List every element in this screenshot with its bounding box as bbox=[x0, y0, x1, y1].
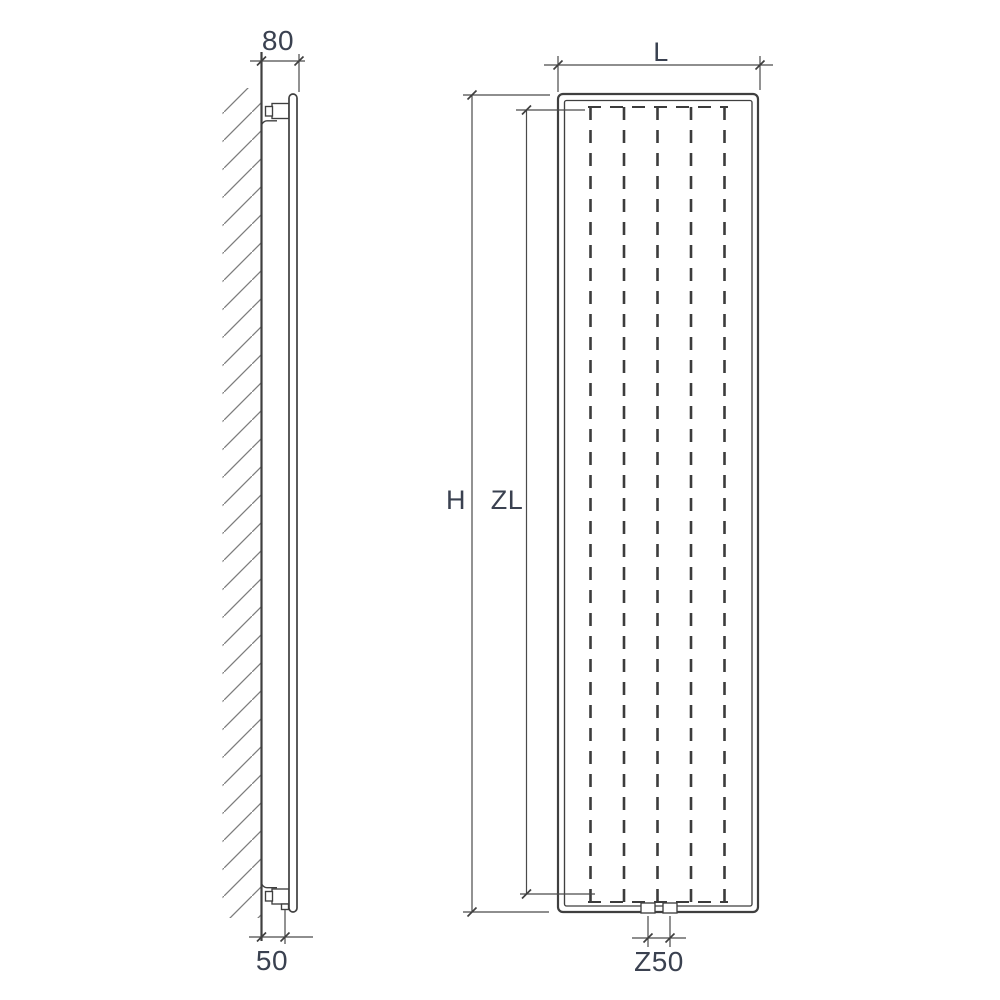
mounting-bracket-bottom bbox=[262, 885, 289, 910]
dimension-label-H: H bbox=[446, 485, 466, 515]
radiator-technical-drawing: 80 50 bbox=[0, 0, 1000, 1000]
wall-hatching bbox=[223, 88, 262, 918]
dimension-label-ZL: ZL bbox=[491, 485, 524, 515]
dimension-connection-spacing: Z50 bbox=[632, 916, 686, 977]
bracket-top-hook bbox=[262, 121, 277, 124]
connection-port-left bbox=[641, 903, 655, 913]
dimension-label-Z50: Z50 bbox=[634, 946, 684, 977]
side-view: 80 50 bbox=[223, 25, 314, 976]
dimension-label-50: 50 bbox=[256, 945, 288, 976]
dimension-wall-clearance-top: 80 bbox=[250, 25, 305, 92]
bracket-bottom-block bbox=[272, 889, 289, 904]
radiator-panel-profile bbox=[289, 94, 297, 912]
bracket-bottom-hook bbox=[262, 885, 277, 888]
connection-port-right bbox=[663, 903, 677, 913]
front-view: L H ZL bbox=[446, 37, 773, 977]
bracket-top-knob bbox=[266, 107, 273, 117]
bracket-top-block bbox=[272, 104, 289, 119]
dimension-wall-clearance-bottom: 50 bbox=[249, 910, 313, 976]
drawing-svg: 80 50 bbox=[0, 0, 1000, 1000]
bracket-bottom-knob bbox=[266, 892, 273, 902]
dimension-length: L bbox=[544, 37, 773, 92]
bottom-connection-stub bbox=[282, 904, 289, 910]
dimension-label-80: 80 bbox=[262, 25, 294, 56]
dimension-label-L: L bbox=[653, 37, 669, 67]
mounting-bracket-top bbox=[262, 104, 289, 125]
